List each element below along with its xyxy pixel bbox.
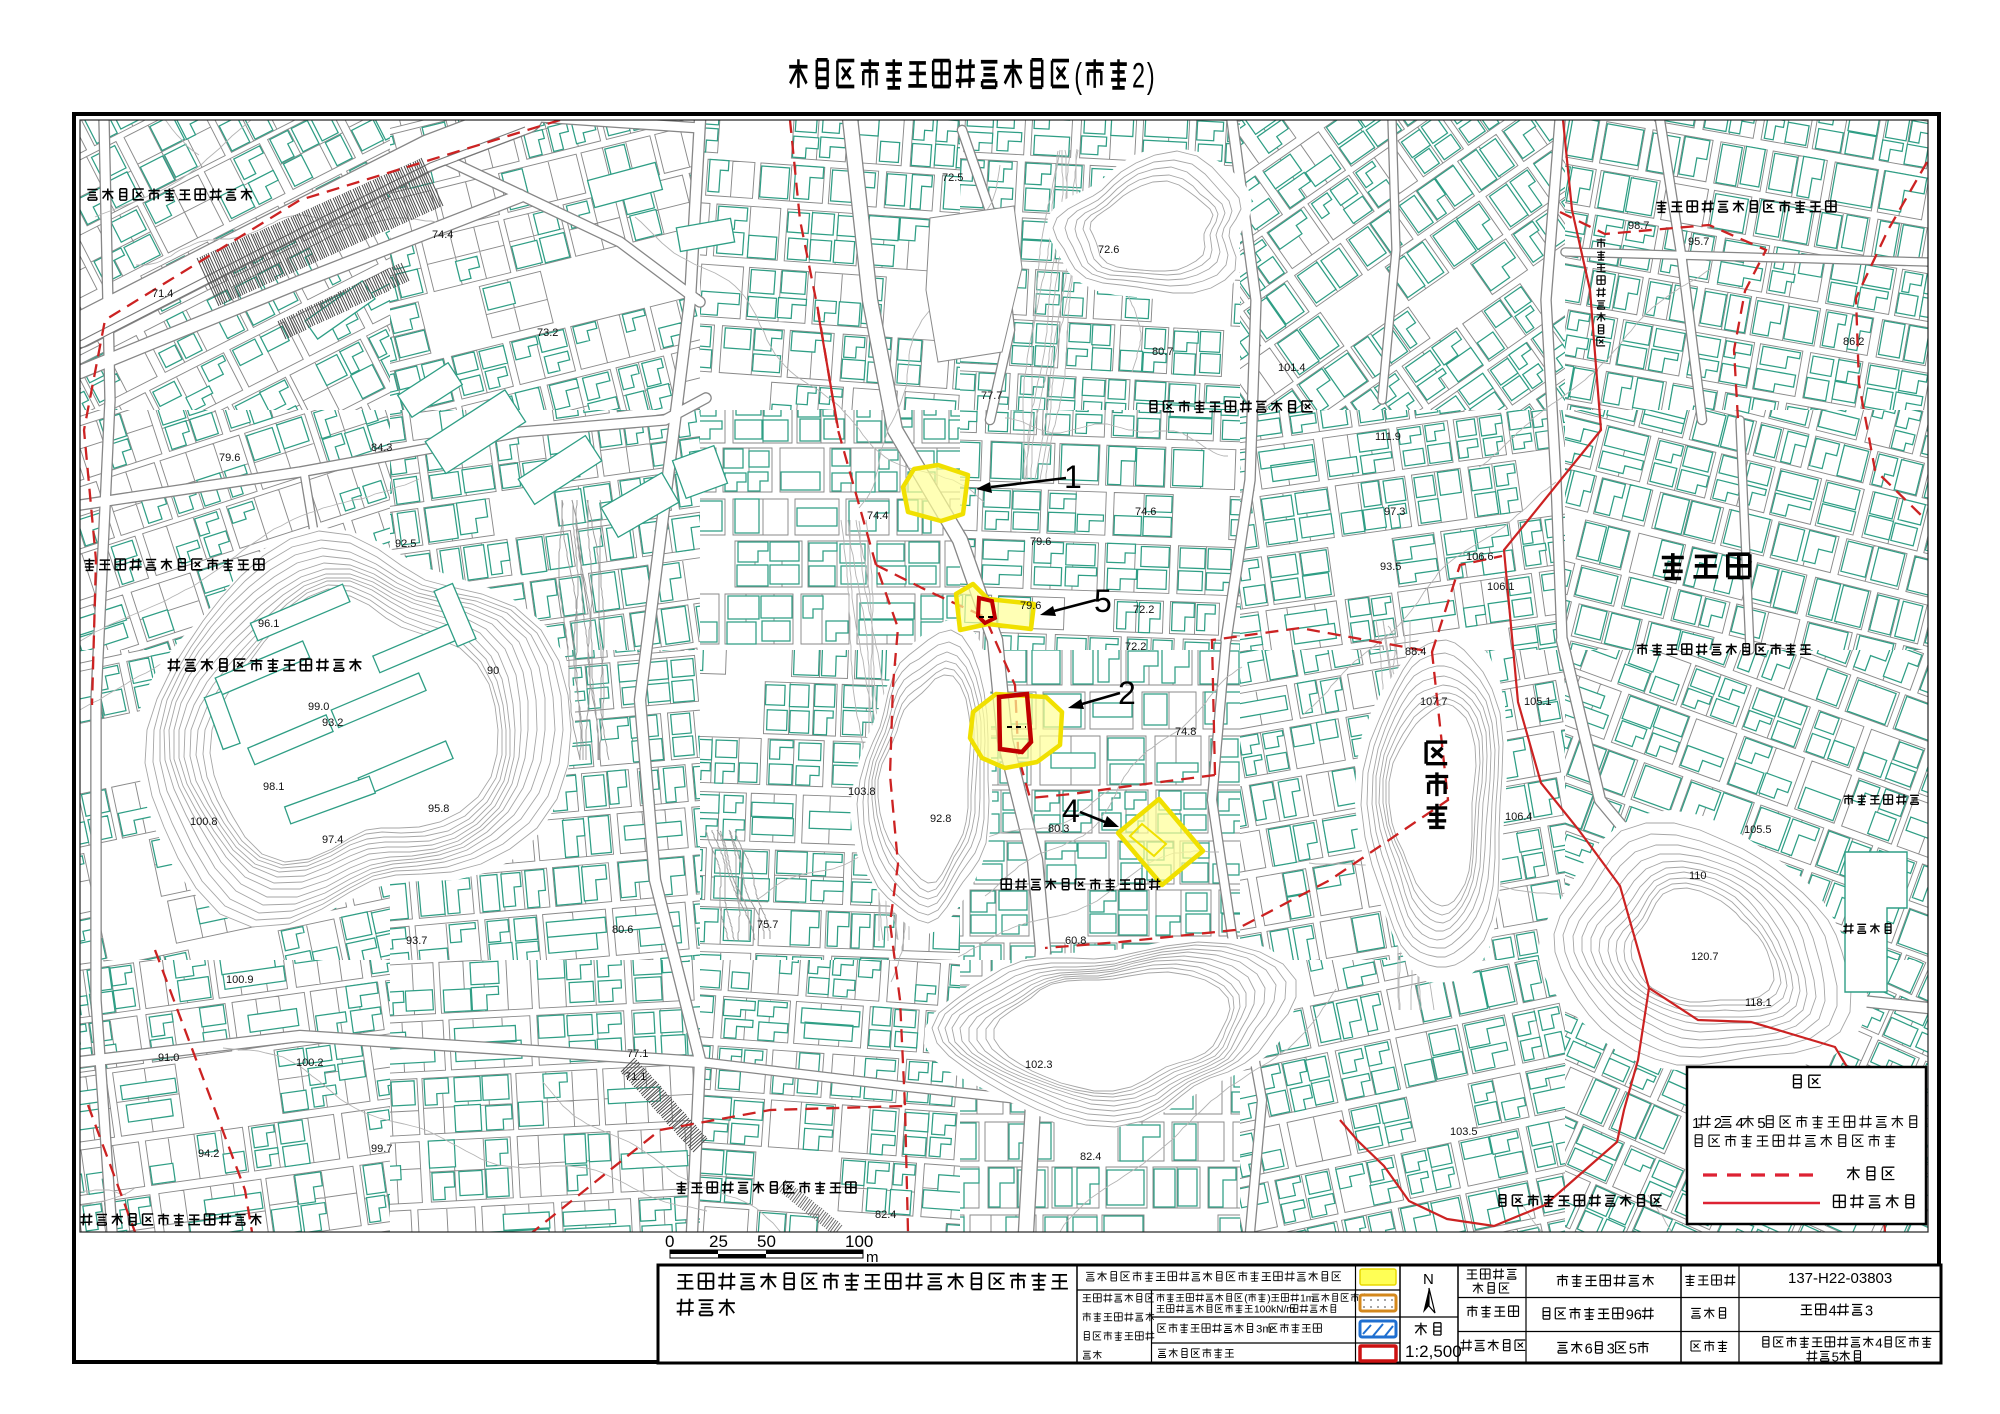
svg-text:84.3: 84.3 — [371, 442, 392, 454]
svg-text:95.8: 95.8 — [428, 803, 449, 815]
svg-text:100.2: 100.2 — [296, 1057, 324, 1069]
svg-text:93.7: 93.7 — [406, 935, 427, 947]
svg-text:77.1: 77.1 — [627, 1048, 648, 1060]
svg-text:95.7: 95.7 — [1688, 236, 1709, 248]
svg-text:90: 90 — [487, 665, 499, 677]
svg-text:3: 3 — [1865, 1303, 1873, 1319]
svg-text:72.2: 72.2 — [1125, 641, 1146, 653]
svg-text:71.4: 71.4 — [152, 288, 173, 300]
svg-text:77.7: 77.7 — [981, 390, 1002, 402]
svg-text:m: m — [866, 1249, 879, 1266]
svg-text:1m: 1m — [1300, 1294, 1314, 1305]
svg-text:5: 5 — [1629, 1341, 1637, 1357]
svg-text:6: 6 — [1585, 1341, 1593, 1357]
svg-text:88.4: 88.4 — [1405, 646, 1426, 658]
svg-text:3: 3 — [1607, 1341, 1615, 1357]
svg-text:75.7: 75.7 — [757, 919, 778, 931]
svg-text:137-H22-03803: 137-H22-03803 — [1788, 1270, 1892, 1287]
svg-text:93.2: 93.2 — [322, 717, 343, 729]
svg-text:99.7: 99.7 — [371, 1143, 392, 1155]
svg-text:105.5: 105.5 — [1744, 824, 1772, 836]
svg-text:2: 2 — [1118, 675, 1136, 711]
svg-text:96.1: 96.1 — [258, 618, 279, 630]
svg-text:2: 2 — [1714, 1115, 1722, 1132]
svg-text:82.4: 82.4 — [875, 1209, 896, 1221]
svg-text:96: 96 — [1626, 1307, 1642, 1323]
svg-text:105.1: 105.1 — [1524, 696, 1552, 708]
svg-text:80.3: 80.3 — [1048, 823, 1069, 835]
svg-text:5: 5 — [1757, 1115, 1765, 1132]
svg-text:25: 25 — [709, 1232, 728, 1251]
svg-text:80.7: 80.7 — [1152, 346, 1173, 358]
svg-text:): ) — [1147, 57, 1155, 96]
svg-text:118.1: 118.1 — [1745, 997, 1772, 1009]
svg-text:91.0: 91.0 — [158, 1052, 179, 1064]
svg-text:80.6: 80.6 — [612, 924, 633, 936]
svg-text:2: 2 — [1132, 57, 1145, 96]
svg-text:(: ( — [1074, 57, 1082, 96]
svg-text:1: 1 — [1064, 459, 1082, 495]
svg-text:102.3: 102.3 — [1025, 1059, 1053, 1071]
svg-text:74.6: 74.6 — [1135, 506, 1156, 518]
svg-text:120.7: 120.7 — [1691, 951, 1719, 963]
svg-text:106.4: 106.4 — [1505, 811, 1533, 823]
svg-text:(: ( — [1244, 1294, 1248, 1305]
svg-text:111.9: 111.9 — [1375, 431, 1401, 443]
svg-text:50: 50 — [757, 1232, 776, 1251]
svg-text:94.2: 94.2 — [198, 1148, 219, 1160]
svg-text:1: 1 — [1692, 1115, 1700, 1132]
svg-text:92.8: 92.8 — [930, 813, 951, 825]
svg-text:4: 4 — [1736, 1115, 1744, 1132]
svg-text:100.8: 100.8 — [190, 816, 218, 828]
svg-text:4: 4 — [1829, 1303, 1837, 1319]
svg-text:107.7: 107.7 — [1420, 696, 1448, 708]
svg-text:100kN/m: 100kN/m — [1254, 1305, 1295, 1316]
svg-text:106.1: 106.1 — [1487, 581, 1515, 593]
svg-text:N: N — [1423, 1271, 1434, 1288]
svg-text:100.9: 100.9 — [226, 974, 254, 986]
svg-text:72.6: 72.6 — [1098, 244, 1119, 256]
svg-text:110: 110 — [1689, 870, 1707, 882]
svg-text:101.4: 101.4 — [1278, 362, 1306, 374]
svg-text:73.2: 73.2 — [537, 327, 558, 339]
svg-text:74.4: 74.4 — [867, 510, 888, 522]
svg-text:1:2,500: 1:2,500 — [1405, 1342, 1462, 1361]
svg-text:72.2: 72.2 — [1133, 604, 1154, 616]
svg-text:5: 5 — [1832, 1349, 1839, 1364]
svg-text:103.8: 103.8 — [848, 786, 876, 798]
svg-text:0: 0 — [665, 1232, 674, 1251]
svg-text:93.5: 93.5 — [1380, 561, 1401, 573]
svg-text:86.2: 86.2 — [1843, 336, 1864, 348]
svg-text:92.5: 92.5 — [395, 538, 416, 550]
svg-text:97.4: 97.4 — [322, 834, 343, 846]
svg-text:82.4: 82.4 — [1080, 1151, 1101, 1163]
svg-text:106.6: 106.6 — [1466, 551, 1494, 563]
svg-text:98.7: 98.7 — [1628, 220, 1649, 232]
svg-text:74.8: 74.8 — [1175, 726, 1196, 738]
svg-text:74.4: 74.4 — [432, 229, 453, 241]
svg-text:79.6: 79.6 — [1030, 536, 1051, 548]
svg-text:97.3: 97.3 — [1384, 506, 1405, 518]
svg-text:99.0: 99.0 — [308, 701, 329, 713]
svg-text:98.1: 98.1 — [263, 781, 284, 793]
svg-text:103.5: 103.5 — [1450, 1126, 1478, 1138]
svg-text:79.6: 79.6 — [219, 452, 240, 464]
svg-text:79.6: 79.6 — [1020, 600, 1041, 612]
svg-text:4: 4 — [1875, 1335, 1882, 1350]
svg-text:5: 5 — [1094, 583, 1112, 619]
svg-text:): ) — [1267, 1294, 1270, 1305]
svg-text:72.5: 72.5 — [942, 172, 963, 184]
svg-text:60.8: 60.8 — [1065, 935, 1086, 947]
svg-text:71.1: 71.1 — [625, 1071, 646, 1083]
